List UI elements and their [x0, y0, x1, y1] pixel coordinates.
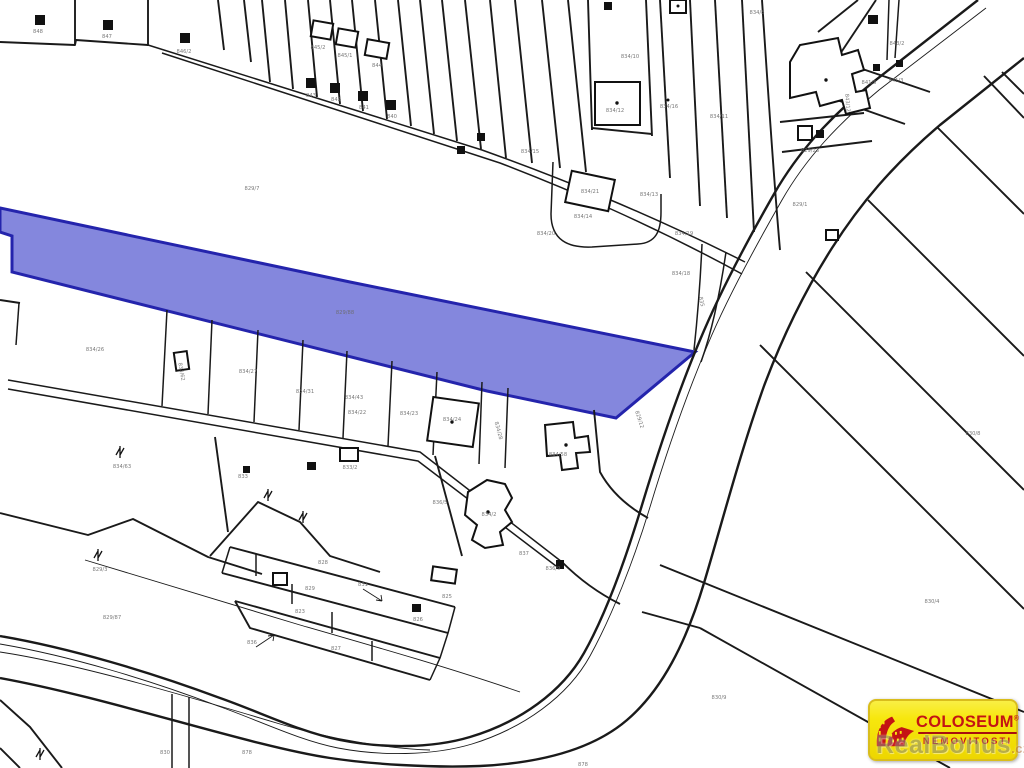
parcel-number-label: 830	[160, 750, 170, 756]
parcel-number-label: 836/9	[546, 566, 561, 572]
parcel-number-label: 834/13	[640, 192, 658, 198]
parcel-number-label: 834/12	[606, 108, 624, 114]
parcel-number-label: 846/2	[177, 49, 192, 55]
registered-mark: ®	[1014, 715, 1019, 722]
parcel-number-label: 829/87	[103, 615, 121, 621]
parcel-number-label: 836	[247, 640, 257, 646]
parcel-number-label: 829/7	[245, 186, 260, 192]
parcel-number-label: 845/1	[338, 53, 353, 59]
coloseum-logo: COLOSEUM® NEMOVITOSTI	[868, 699, 1018, 761]
parcel-number-label: 834/14	[574, 214, 593, 220]
parcel-number-label: 878	[242, 750, 252, 756]
parcel-number-label: 842	[331, 97, 341, 103]
parcel-number-label: 834/22	[348, 410, 366, 416]
parcel-number-label: 848	[33, 29, 43, 35]
parcel-number-label: 843/2	[890, 41, 905, 47]
parcel-number-label: 841/5	[862, 80, 877, 86]
logo-divider	[918, 732, 1017, 734]
parcel-number-label: 841	[359, 105, 369, 111]
parcel-number-label: 878	[578, 762, 588, 768]
parcel-number-label: 834/63	[113, 464, 131, 470]
parcel-number-label: 834/20	[537, 231, 555, 237]
parcel-number-label: 834/15	[521, 149, 539, 155]
parcel-number-label: 834/16	[660, 104, 678, 110]
parcel-number-label: 823	[295, 609, 305, 615]
parcel-number-label: 834/11	[710, 114, 728, 120]
parcel-number-label: 829/3	[93, 567, 108, 573]
parcel-number-label: 830/4	[925, 599, 941, 605]
parcel-number-label: 828	[318, 560, 328, 566]
parcel-number-label: 834/27	[239, 369, 257, 375]
colosseum-icon	[874, 707, 916, 753]
parcel-number-label: 826	[413, 617, 423, 623]
parcel-number-label: 840	[387, 114, 397, 120]
parcel-number-label: 834/8	[750, 10, 765, 16]
cadastral-map[interactable]: 848847846/2845/2845/1844843842841840829/…	[0, 0, 1024, 768]
parcel-number-label: 829/23	[801, 148, 819, 154]
logo-subtitle: NEMOVITOSTI	[916, 737, 1019, 747]
parcel-number-label: 830/8	[966, 431, 981, 437]
parcel-number-label: 845/2	[311, 45, 326, 51]
parcel-number-label: 831	[358, 582, 368, 588]
map-canvas[interactable]: 848847846/2845/2845/1844843842841840829/…	[0, 0, 1024, 768]
parcel-number-label: 844	[372, 63, 383, 69]
logo-text: COLOSEUM® NEMOVITOSTI	[916, 714, 1019, 747]
building-outline	[311, 20, 333, 39]
parcel-number-label: 836/5	[433, 500, 448, 506]
parcel-number-label: 827	[331, 646, 341, 652]
parcel-number-label: 834/21	[581, 189, 599, 195]
parcel-number-label: 834/2	[482, 512, 497, 518]
parcel-number-label: 833	[238, 474, 248, 480]
parcel-number-label: 841/3	[889, 78, 904, 84]
parcel-number-label: 837	[519, 551, 529, 557]
parcel-number-label: 843	[306, 93, 316, 99]
parcel-number-label: 834/24	[443, 417, 462, 423]
parcel-number-label: 829/1	[793, 202, 808, 208]
parcel-number-label: 834/23	[400, 411, 418, 417]
building-footprint	[35, 15, 45, 25]
parcel-number-label: 830/9	[712, 695, 727, 701]
logo-brand: COLOSEUM®	[916, 714, 1019, 731]
parcel-number-label: 834/26	[86, 347, 104, 353]
building-footprint	[180, 33, 190, 43]
parcel-number-label: 834/58	[549, 452, 567, 458]
parcel-number-label: 834/43	[345, 395, 363, 401]
parcel-number-label: 847	[102, 34, 112, 40]
parcel-number-label: 829	[305, 586, 315, 592]
parcel-number-label: 834/19	[675, 231, 693, 237]
parcel-number-label: 833/2	[343, 465, 358, 471]
parcel-number-label: 834/18	[672, 271, 690, 277]
parcel-number-label: 829/88	[336, 310, 354, 316]
building-footprint	[103, 20, 113, 30]
parcel-number-label: 825	[442, 594, 452, 600]
parcel-number-label: 834/10	[621, 54, 639, 60]
parcel-number-label: 834/31	[296, 389, 314, 395]
